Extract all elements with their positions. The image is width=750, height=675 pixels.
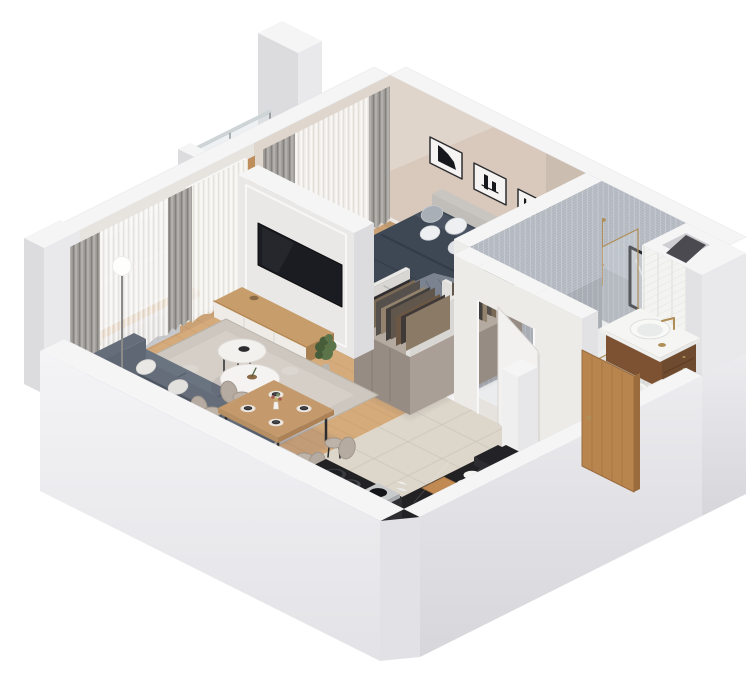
plate-inner-2 (301, 407, 306, 410)
flower-vase (274, 402, 279, 409)
floorplan-canvas (0, 0, 750, 675)
potted-plant-leaves (325, 334, 333, 342)
floorplan-3d-render (0, 0, 750, 675)
bath-hall-wall-1-side-f (454, 255, 478, 413)
ct1-decor-bowl (238, 346, 249, 352)
bedroom-curtain-gray-1-folds (369, 85, 393, 233)
entrance-door-edge (634, 373, 640, 492)
east-wall-outer-lower (702, 354, 746, 516)
sink-basin (637, 323, 663, 336)
vase-flowers (278, 397, 282, 401)
living-curtain-gray-1-folds (168, 186, 192, 334)
vanity-knob-1 (683, 356, 686, 358)
vase-flowers (276, 393, 280, 397)
tv-partition-side-r (354, 223, 374, 359)
vase-flowers (274, 397, 278, 401)
plate-inner-4 (273, 421, 278, 424)
south-corner-cap (380, 517, 420, 661)
floor-lamp-globe (113, 257, 132, 276)
entrance-door-handle (587, 416, 592, 421)
vase-flowers (271, 395, 275, 399)
soap-bottle (658, 343, 666, 347)
stand-decor-vase (249, 296, 258, 301)
dining-chair-3-leg-1 (328, 447, 329, 457)
plate-inner-3 (245, 407, 250, 410)
rug-mottle (282, 367, 299, 375)
potted-plant-leaves (315, 351, 323, 359)
